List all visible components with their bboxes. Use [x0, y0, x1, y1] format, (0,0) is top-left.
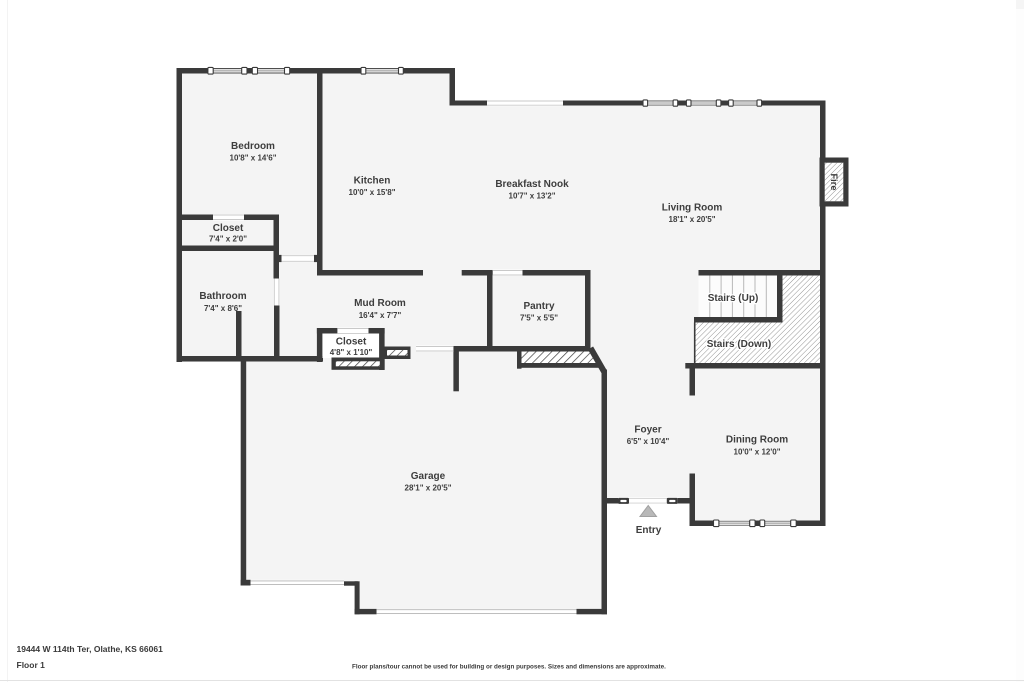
svg-text:10'0" x 12'0": 10'0" x 12'0"	[734, 448, 781, 457]
svg-text:Kitchen: Kitchen	[354, 176, 391, 187]
svg-text:Stairs (Up): Stairs (Up)	[708, 293, 759, 304]
svg-text:Closet: Closet	[336, 337, 367, 348]
svg-text:Mud Room: Mud Room	[354, 298, 406, 309]
svg-text:10'8" x 14'6": 10'8" x 14'6"	[230, 154, 277, 163]
svg-text:Pantry: Pantry	[523, 301, 555, 312]
svg-text:7'4" x 2'0": 7'4" x 2'0"	[209, 235, 247, 244]
svg-text:28'1" x 20'5": 28'1" x 20'5"	[405, 484, 452, 493]
svg-text:6'5" x 10'4": 6'5" x 10'4"	[627, 437, 670, 446]
svg-text:Floor plans/tour cannot be use: Floor plans/tour cannot be used for buil…	[352, 664, 666, 671]
svg-text:Fire: Fire	[829, 173, 839, 190]
svg-text:Floor 1: Floor 1	[17, 660, 46, 670]
svg-text:Dining Room: Dining Room	[726, 435, 788, 446]
svg-text:19444 W 114th Ter, Olathe, KS: 19444 W 114th Ter, Olathe, KS 66061	[17, 644, 164, 654]
svg-text:10'0" x 15'8": 10'0" x 15'8"	[349, 188, 396, 197]
svg-text:Bedroom: Bedroom	[231, 141, 275, 152]
svg-text:Bathroom: Bathroom	[199, 291, 246, 302]
svg-text:Living Room: Living Room	[662, 203, 723, 214]
svg-text:7'5" x 5'5": 7'5" x 5'5"	[520, 314, 558, 323]
svg-text:Stairs (Down): Stairs (Down)	[707, 339, 771, 350]
svg-text:18'1" x 20'5": 18'1" x 20'5"	[669, 215, 716, 224]
svg-text:Closet: Closet	[213, 223, 244, 234]
svg-text:Breakfast Nook: Breakfast Nook	[495, 179, 569, 190]
svg-text:Garage: Garage	[411, 471, 446, 482]
svg-text:Foyer: Foyer	[634, 425, 661, 436]
svg-text:7'4" x 8'6": 7'4" x 8'6"	[204, 304, 242, 313]
svg-text:4'8" x 1'10": 4'8" x 1'10"	[330, 348, 373, 357]
svg-text:16'4" x 7'7": 16'4" x 7'7"	[359, 311, 402, 320]
svg-text:Entry: Entry	[636, 525, 662, 536]
svg-text:10'7" x 13'2": 10'7" x 13'2"	[509, 192, 556, 201]
